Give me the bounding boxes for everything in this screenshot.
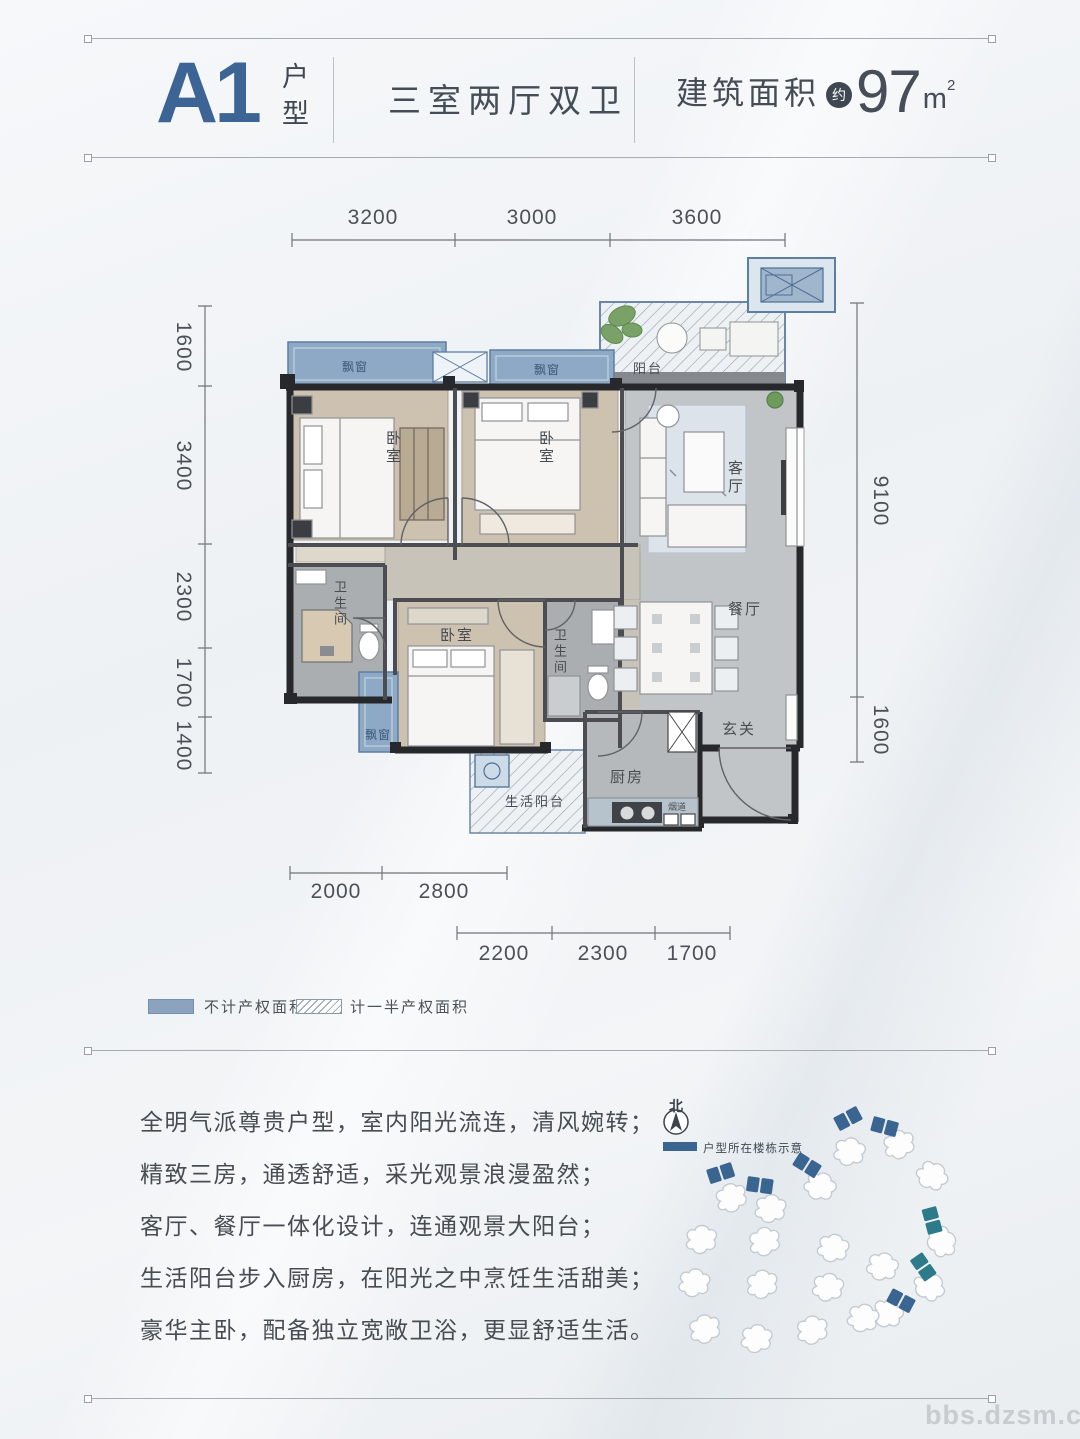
description-line: 全明气派尊贵户型，室内阳光流连，清风婉转； <box>140 1096 655 1148</box>
middle-rule <box>88 1050 992 1051</box>
legend-hatch-swatch <box>296 999 342 1014</box>
watermark: bbs.dzsm.com <box>925 1400 1080 1431</box>
dim-right-2: 1600 <box>868 698 892 762</box>
area-spec: 建筑面积 约 97 m2 <box>676 56 955 126</box>
foyer-floor <box>700 748 795 820</box>
label-bedroom-2: 卧室 <box>535 430 556 466</box>
unit-layout-subtitle: 三室两厅双卫 <box>388 74 628 122</box>
area-unit: m2 <box>923 77 956 116</box>
description-line: 客厅、餐厅一体化设计，连通观景大阳台； <box>140 1200 655 1252</box>
dim-bottom1-2: 2800 <box>409 880 479 904</box>
description-line: 豪华主卧，配备独立宽敞卫浴，更显舒适生活。 <box>140 1304 655 1356</box>
label-balcony: 阳台 <box>633 358 663 377</box>
dim-bottom2-1: 2200 <box>469 942 539 966</box>
description-line: 生活阳台步入厨房，在阳光之中烹饪生活甜美； <box>140 1252 655 1304</box>
floorplan-poster: A1 户型 三室两厅双卫 建筑面积 约 97 m2 3200 3000 3600… <box>0 0 1080 1439</box>
site-legend-swatch <box>663 1142 697 1151</box>
site-buildings-outline <box>678 1128 960 1354</box>
approx-badge: 约 <box>826 82 852 108</box>
dim-left-4: 1700 <box>171 651 195 715</box>
dim-right-1: 9100 <box>868 469 892 533</box>
toilet2 <box>588 674 608 700</box>
label-bath-2: 卫生间 <box>550 628 569 676</box>
dim-left-2: 3400 <box>171 434 195 498</box>
label-bay-window-3: 飘窗 <box>365 726 391 743</box>
legend-half-rights-label: 计一半产权面积 <box>350 996 469 1017</box>
label-bay-window-2: 飘窗 <box>534 361 560 378</box>
bottom-rule <box>88 1398 992 1399</box>
legend-solid-swatch <box>148 999 194 1014</box>
sofa <box>640 418 666 536</box>
label-bay-window-1: 飘窗 <box>342 358 368 375</box>
label-foyer: 玄关 <box>722 718 756 739</box>
tv-console <box>786 428 797 546</box>
ac-platform-icon <box>748 258 835 312</box>
unit-code: A1 <box>156 44 258 143</box>
shower2 <box>548 676 580 716</box>
washer-icon <box>475 755 509 787</box>
area-label: 建筑面积 <box>676 68 820 114</box>
label-kitchen: 厨房 <box>610 766 644 787</box>
dim-left-5: 1400 <box>171 714 195 778</box>
dim-bottom2-2: 2300 <box>568 942 638 966</box>
area-value: 97 <box>856 57 921 126</box>
description-line: 精致三房，通透舒适，采光观景浪漫盈然； <box>140 1148 655 1200</box>
hall-floor <box>385 545 640 600</box>
dining-table <box>640 602 712 694</box>
sink2 <box>592 610 614 644</box>
dim-left-1: 1600 <box>171 315 195 379</box>
stove <box>612 802 662 823</box>
dim-bottom2-3: 1700 <box>657 942 727 966</box>
label-dining: 餐厅 <box>728 598 762 619</box>
label-service-balcony: 生活阳台 <box>505 791 565 810</box>
label-bath-1: 卫生间 <box>330 580 349 628</box>
top-rule <box>88 38 992 39</box>
north-label: 北 <box>669 1096 683 1116</box>
legend-no-rights-label: 不计产权面积 <box>204 996 306 1017</box>
label-bedroom-3: 卧室 <box>440 624 474 645</box>
toilet1 <box>359 632 379 660</box>
header-divider-2 <box>634 57 635 143</box>
window-box-icon <box>433 352 487 382</box>
label-flue: 烟道 <box>668 800 686 813</box>
dim-bottom1-1: 2000 <box>301 880 371 904</box>
dim-top-1: 3200 <box>338 206 408 230</box>
label-living: 客厅 <box>724 460 745 496</box>
dim-top-3: 3600 <box>662 206 732 230</box>
description-block: 全明气派尊贵户型，室内阳光流连，清风婉转； 精致三房，通透舒适，采光观景浪漫盈然… <box>140 1096 655 1356</box>
unit-suffix: 户型 <box>274 62 313 136</box>
header-divider-1 <box>333 57 334 143</box>
dim-left-3: 2300 <box>171 565 195 629</box>
dim-top-2: 3000 <box>497 206 567 230</box>
coffee-table <box>684 432 724 492</box>
label-bedroom-1: 卧室 <box>382 430 403 466</box>
header-bottom-rule <box>88 157 992 158</box>
site-legend-label: 户型所在楼栋示意 <box>703 1140 803 1156</box>
